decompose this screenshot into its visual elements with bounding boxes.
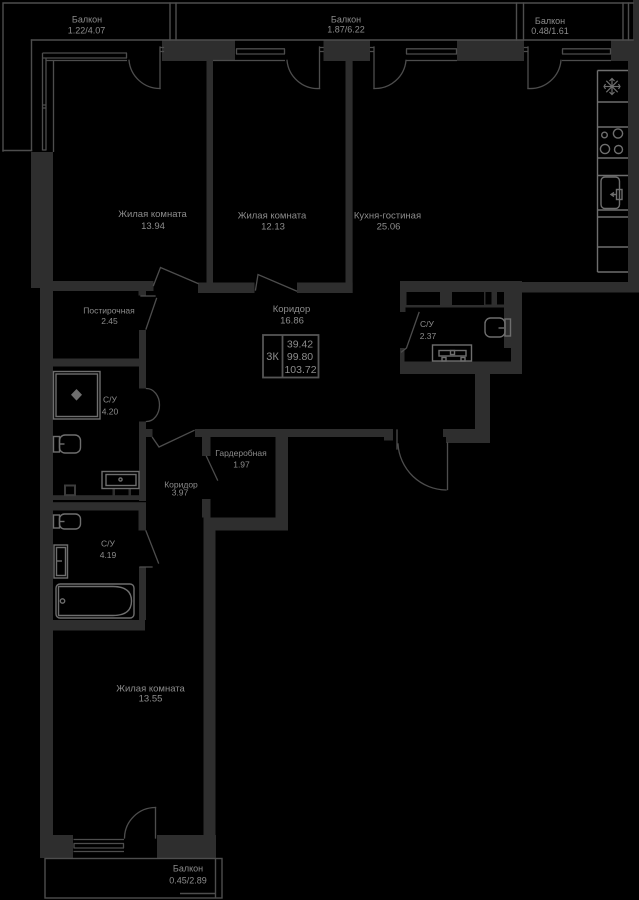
svg-text:С/У: С/У [103, 395, 118, 405]
svg-text:Жилая комната: Жилая комната [118, 209, 187, 220]
svg-text:1.87/6.22: 1.87/6.22 [327, 25, 365, 35]
svg-text:1.22/4.07: 1.22/4.07 [68, 26, 106, 36]
svg-text:Постирочная: Постирочная [83, 306, 135, 316]
svg-text:39.42: 39.42 [287, 339, 313, 351]
svg-text:3К: 3К [266, 351, 279, 363]
svg-text:С/У: С/У [420, 319, 435, 329]
svg-text:С/У: С/У [101, 539, 116, 549]
svg-text:99.80: 99.80 [287, 351, 313, 363]
svg-text:0.48/1.61: 0.48/1.61 [531, 26, 569, 36]
svg-text:2.37: 2.37 [420, 331, 437, 341]
svg-text:1.97: 1.97 [233, 460, 250, 470]
svg-text:25.06: 25.06 [377, 222, 401, 233]
svg-text:Жилая комната: Жилая комната [238, 211, 307, 222]
svg-text:0.45/2.89: 0.45/2.89 [169, 876, 207, 886]
svg-text:Балкон: Балкон [173, 864, 203, 874]
svg-text:13.94: 13.94 [141, 221, 165, 232]
svg-text:2.45: 2.45 [101, 316, 118, 326]
svg-text:4.19: 4.19 [100, 550, 117, 560]
svg-text:12.13: 12.13 [261, 222, 285, 233]
svg-text:Балкон: Балкон [72, 15, 102, 25]
svg-text:Балкон: Балкон [535, 16, 565, 26]
svg-text:4.20: 4.20 [102, 407, 119, 417]
svg-text:13.55: 13.55 [139, 694, 163, 705]
svg-text:Балкон: Балкон [331, 15, 361, 25]
svg-text:103.72: 103.72 [284, 364, 316, 376]
svg-text:16.86: 16.86 [280, 316, 304, 327]
svg-text:Кухня-гостиная: Кухня-гостиная [354, 211, 421, 222]
svg-text:Гардеробная: Гардеробная [215, 448, 267, 458]
svg-text:3.97: 3.97 [172, 488, 189, 498]
svg-text:Коридор: Коридор [273, 304, 311, 315]
